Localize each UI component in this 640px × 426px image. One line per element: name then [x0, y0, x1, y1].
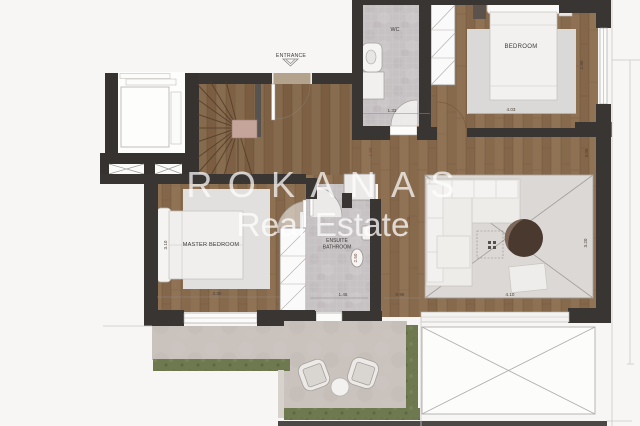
svg-text:0.96: 0.96: [396, 292, 405, 297]
svg-text:3.30: 3.30: [213, 291, 222, 296]
svg-text:BEDROOM: BEDROOM: [504, 44, 537, 50]
svg-text:1.33: 1.33: [388, 108, 397, 113]
svg-text:3.20: 3.20: [583, 238, 588, 247]
svg-text:WC: WC: [391, 27, 400, 33]
svg-text:3.05: 3.05: [584, 148, 589, 157]
svg-text:2.50: 2.50: [353, 253, 358, 262]
svg-text:Real Estate: Real Estate: [236, 207, 409, 244]
svg-text:MASTER BEDROOM: MASTER BEDROOM: [183, 242, 240, 248]
svg-text:1.93: 1.93: [368, 147, 373, 156]
svg-text:4.10: 4.10: [506, 292, 515, 297]
svg-text:BATHROOM: BATHROOM: [323, 245, 352, 251]
svg-text:2.90: 2.90: [579, 60, 584, 69]
svg-text:1.45: 1.45: [339, 292, 348, 297]
svg-text:3.10: 3.10: [163, 240, 168, 249]
svg-text:ROKANAS: ROKANAS: [186, 164, 469, 205]
svg-text:4.03: 4.03: [507, 107, 516, 112]
svg-text:ENTRANCE: ENTRANCE: [276, 53, 306, 59]
